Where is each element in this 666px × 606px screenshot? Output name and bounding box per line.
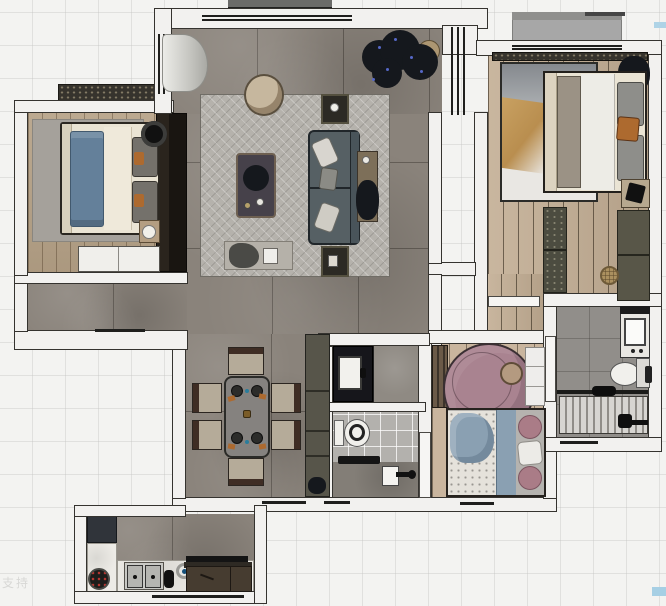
toilet-mid-tank [334,420,344,446]
kid-cabinet-line [526,386,544,387]
plant-flower [372,78,375,81]
dresser-left [78,246,160,272]
sink-drain [151,575,155,579]
watermark-text: 支持 [2,574,30,591]
bathroom-mid-shower-floor [333,462,428,497]
wall [14,100,174,113]
window-master-top [512,45,622,47]
kitchen-faucet [164,570,174,588]
plant-flower [420,70,423,73]
wall [14,330,188,350]
wall [318,333,430,346]
wall [428,330,548,344]
ac-platform-mark [585,12,625,16]
bed-runner [557,76,581,188]
vanity-sink [338,356,362,390]
wall [14,100,28,276]
window-living-left [158,34,160,94]
kid-pink-pillow [518,466,542,490]
door-kid-room [419,432,431,498]
wall [14,272,188,284]
bed-accent-cushion [134,194,144,207]
bed-master [543,71,647,193]
kitchen-cabinets [186,566,252,592]
vanity-faucet [360,368,366,378]
bench-divider [544,249,566,251]
window-master-top [512,48,622,50]
wall [254,505,267,604]
dining-chair [228,347,264,375]
wall [648,54,662,444]
side-table-item [328,255,338,267]
floor-plant [372,58,402,88]
floor-plant [402,44,438,80]
sideboard-plant [308,477,326,494]
cup [245,440,249,444]
floorplan-canvas: 支持 [0,0,666,606]
dinner-plate [251,432,263,444]
wall [543,437,662,452]
toilet-right-fitting [645,366,652,383]
dining-chair [192,383,222,413]
bed-foot-fold [545,73,557,191]
window-side [457,27,459,115]
plant-flower [394,38,397,41]
kid-rug-pouf [500,362,523,385]
wall [172,497,557,512]
dinner-plate [231,432,243,444]
bench-clothes [229,243,259,268]
entry-threshold [262,501,306,504]
wall [172,344,186,499]
kitchen-sink [124,562,164,590]
threshold [324,501,350,504]
armchair [244,74,284,116]
blue-sliver [652,587,666,596]
plant-flower [386,68,389,71]
sink-faucet-dot [639,349,643,353]
bed-sheet [104,127,132,230]
dining-chair [192,420,222,450]
wardrobe-divider [618,254,649,256]
kid-cabinet-line [526,366,544,367]
console-plant [356,180,379,220]
sofa-cushion [319,167,339,191]
dining-chair [271,383,301,413]
window-kitchen [152,595,244,598]
nightstand-tray [142,225,156,239]
rattan-pouf [600,266,619,285]
plant-flower [378,46,381,49]
napkin [228,443,236,449]
bed-accent-cushion [134,152,144,165]
wall [442,25,478,55]
wall [74,505,186,517]
coffee-table-cup [256,198,264,206]
window-planter-box [58,84,156,101]
threshold [95,329,145,332]
window-side [451,27,453,115]
sink-unit-shelf [620,306,650,314]
plant-flower [410,56,413,59]
bed-accent-cushion [616,116,640,142]
kid-headboard-strip [496,410,516,495]
bed-throw-blanket [70,131,104,227]
sideboard [305,334,330,497]
shower-head [408,470,416,479]
bed-kid [446,408,546,497]
wall [326,402,426,412]
toilet-mid-seat [349,424,365,441]
shower-glass-handle [592,386,616,396]
coffee-table-tray [244,202,251,209]
centerpiece [243,410,251,418]
bathroom-right-shower-slats [559,396,648,434]
sink-basin-right [624,318,646,346]
kid-white-pillow [517,440,543,466]
bed-duvet [581,74,615,190]
wall [474,112,488,334]
side-table-flower [330,103,339,112]
dresser-divider [118,247,119,271]
bed-pillow [617,135,644,181]
coffee-table-plant [243,165,269,191]
wall [428,112,442,264]
living-room-floor-west-extension [28,284,187,332]
threshold [560,441,598,444]
gas-burner [88,568,110,590]
window-living-top [202,15,352,17]
dining-chair [228,458,264,486]
sideboard-divider [306,455,329,457]
sink-drain [133,575,137,579]
table-lamp [141,121,167,147]
threshold [460,502,494,505]
sideboard-divider [306,430,329,432]
cabinet-divider [230,567,231,591]
shower-arm [628,420,648,425]
door-bathroom-right [545,336,556,402]
kid-cabinet [525,347,545,406]
dining-chair [271,420,301,450]
cup [245,389,249,393]
sideboard-divider [306,390,329,392]
blue-sliver [654,22,666,28]
window-side [463,27,465,115]
window-living-top [202,19,352,21]
door-master [488,296,540,307]
bench-book [263,248,278,264]
sink-faucet-dot [631,349,635,353]
wall [74,505,87,604]
bath-mat [338,456,380,464]
kid-pink-pillow [518,415,542,439]
console-cup [362,156,370,164]
